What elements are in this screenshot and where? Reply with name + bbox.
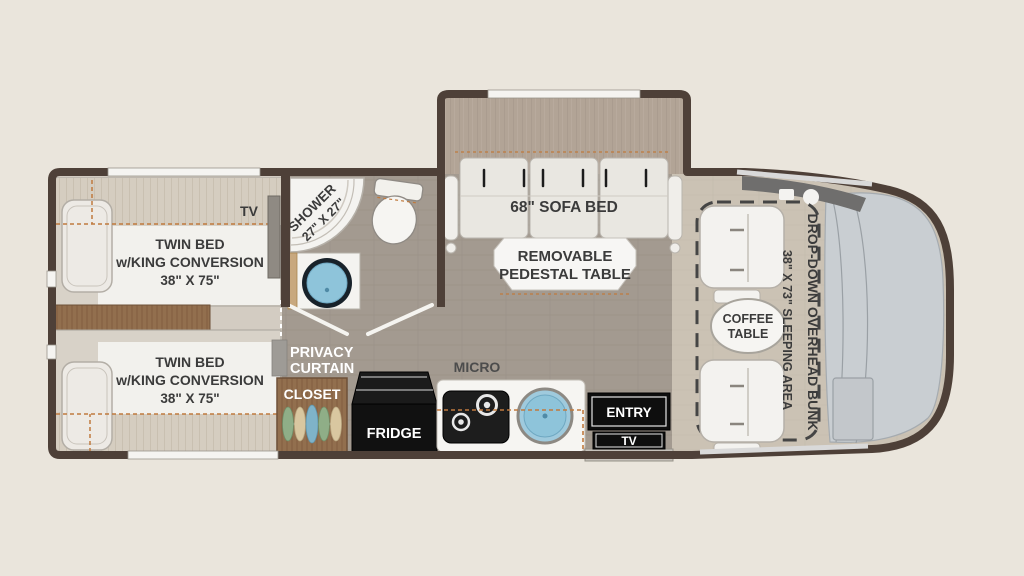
hanger-icon	[295, 407, 306, 441]
bedroom-bath-wall	[281, 172, 290, 307]
entry-area: ENTRY TV	[585, 393, 673, 461]
coffee-label-2: TABLE	[728, 327, 769, 341]
bedroom-tv-label: TV	[240, 203, 259, 219]
burner-center	[484, 402, 490, 408]
rv-floorplan: TWIN BED w/KING CONVERSION 38" X 75" TWI…	[0, 0, 1024, 576]
window-rear-2	[47, 345, 56, 359]
sofa-cushion	[460, 158, 528, 238]
fridge-label: FRIDGE	[367, 426, 422, 442]
pillow-icon	[62, 362, 112, 450]
entry-label: ENTRY	[606, 405, 651, 420]
swivel-chair-top	[700, 206, 784, 288]
sofa-armrest-right	[668, 176, 682, 240]
sofa-armrest-left	[444, 176, 458, 240]
wall-end-cap	[272, 340, 287, 376]
armrest-cupholder	[670, 243, 680, 253]
dash-screen	[779, 189, 794, 200]
coffee-table	[711, 299, 785, 353]
armrest-cupholder	[446, 243, 456, 253]
bed-bottom-label-1: TWIN BED	[155, 354, 224, 370]
table-label-2: PEDESTAL TABLE	[499, 266, 631, 283]
chair-body	[700, 206, 784, 288]
table-label-1: REMOVABLE	[518, 248, 613, 265]
bed-top-label-1: TWIN BED	[155, 236, 224, 252]
bed-bottom-label-2: w/KING CONVERSION	[115, 372, 264, 388]
steering-wheel-icon	[803, 189, 819, 205]
swivel-chair-bottom	[700, 360, 784, 442]
chair-body	[700, 360, 784, 442]
sofa-label: 68" SOFA BED	[510, 199, 618, 216]
closet-label: CLOSET	[284, 386, 341, 402]
window-bedroom-bottom	[128, 451, 278, 459]
privacy-label-1: PRIVACY	[290, 345, 354, 361]
window-rear-1	[47, 271, 56, 287]
burner-center	[458, 419, 464, 425]
sofa-cushions	[460, 158, 668, 238]
engine-cover	[833, 378, 873, 440]
hanger-icon	[283, 407, 294, 441]
sofa-cushion	[600, 158, 668, 238]
hanger-icons	[283, 405, 342, 443]
bedroom-tv	[268, 196, 280, 278]
cooktop	[443, 391, 509, 443]
bed-top-label-3: 38" X 75"	[160, 273, 219, 288]
entry-tv-label: TV	[621, 434, 636, 448]
window-slideout	[488, 90, 640, 98]
bed-top-label-2: w/KING CONVERSION	[115, 254, 264, 270]
pillow-icon	[62, 200, 112, 292]
privacy-label-2: CURTAIN	[290, 361, 354, 377]
bunk-label-1: DROP-DOWN OVERHEAD BUNK	[805, 214, 821, 431]
hanger-icon	[331, 407, 342, 441]
nightstand	[54, 305, 210, 331]
micro-label: MICRO	[454, 359, 501, 375]
bed-bottom-label-3: 38" X 75"	[160, 391, 219, 406]
floorplan-canvas: TWIN BED w/KING CONVERSION 38" X 75" TWI…	[0, 0, 1024, 576]
bath-sink-icon	[307, 263, 347, 303]
bath-sink-drain	[325, 288, 329, 292]
bath-right-wall	[437, 172, 445, 307]
coffee-label-1: COFFEE	[723, 312, 774, 326]
bunk-label-2: 38" X 73" SLEEPING AREA	[780, 250, 794, 410]
hanger-icon	[319, 407, 330, 441]
window-bedroom-top	[108, 168, 260, 176]
hanger-icon	[306, 405, 318, 443]
kitchen-sink-drain	[543, 414, 548, 419]
sofa-cushion	[530, 158, 598, 238]
